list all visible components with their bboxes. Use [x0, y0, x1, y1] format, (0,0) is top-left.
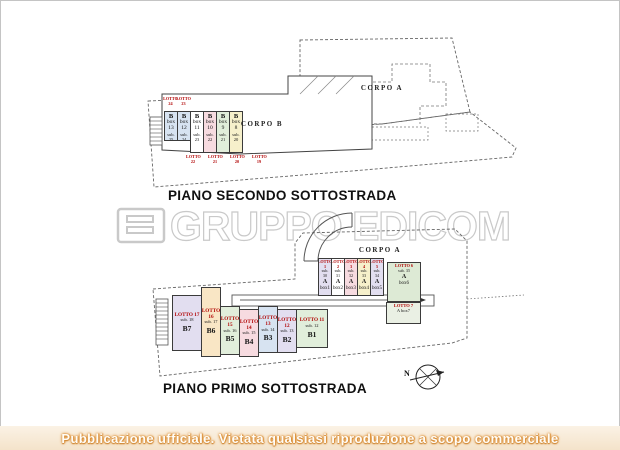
unit-number: box6	[399, 281, 409, 286]
watermark-text: GRUPPO EDICOM	[170, 203, 510, 249]
lot-sub: sub. 13	[280, 329, 293, 334]
unit-cell-box11: B box 11 sub. 23	[190, 111, 204, 153]
publication-banner: Pubblicazione ufficiale. Vietata qualsia…	[0, 426, 620, 450]
lot-sub: sub. 18	[180, 318, 193, 323]
unit-sub: sub. 32	[345, 269, 357, 278]
unit-cell-abox3: LOTTO 3 sub. 32 A box3	[344, 258, 358, 296]
compass-icon	[410, 365, 444, 389]
unit-number: box 9	[217, 120, 229, 132]
unit-cell-box8: B box 8 sub. 20	[229, 111, 243, 153]
unit-cell-box12: B box 12 sub. 24	[177, 111, 191, 141]
corpo-a-label-primo: CORPO A	[350, 246, 410, 254]
lot-name: B6	[207, 327, 216, 335]
stairs-secondo	[150, 117, 162, 145]
unit-sub: sub. 20	[230, 133, 242, 143]
unit-sub: sub. 25	[165, 133, 177, 141]
corpo-a-label-secondo: CORPO A	[352, 84, 412, 92]
compass-n-label: N	[404, 369, 410, 378]
unit-number: box3	[346, 286, 356, 291]
annex-outline	[446, 114, 478, 131]
unit-cell-abox2: LOTTO 2 sub. 31 A box2	[331, 258, 345, 296]
lot-cell-b7: LOTTO 17 sub. 18 B7	[172, 295, 202, 351]
unit-sub: sub. 35	[398, 269, 410, 274]
annex-outline	[364, 127, 428, 140]
lot-cell-b4: LOTTO 14 sub. 15 B4	[239, 309, 259, 357]
unit-number: box4	[359, 286, 369, 291]
unit-sub: sub. 34	[371, 269, 383, 278]
lot-name: B3	[264, 334, 273, 342]
unit-number: A box7	[397, 309, 410, 314]
unit-sub: sub. 30	[319, 269, 331, 278]
cadastral-plan-page: GRUPPO EDICOM	[0, 0, 620, 450]
boundary-stub	[467, 295, 524, 299]
unit-cell-box13: B box 13 sub. 25	[164, 111, 178, 141]
lot-name: B5	[226, 335, 235, 343]
lotto-tag: LOTTO 22	[186, 155, 200, 165]
unit-cell-box9: B box 9 sub. 21	[216, 111, 230, 153]
unit-sub: sub. 23	[191, 133, 203, 143]
lot-name: B7	[183, 325, 192, 333]
lot-sub: sub. 12	[305, 324, 318, 329]
edicom-logo-icon	[118, 209, 164, 242]
unit-number: box 13	[165, 120, 177, 132]
unit-number: box5	[372, 286, 382, 291]
unit-cell-abox6: LOTTO 6 sub. 35 A box6	[387, 262, 421, 302]
lot-cell-b1: LOTTO 11 sub. 12 B1	[296, 309, 328, 348]
unit-cell-abox7: LOTTO 7 A box7	[386, 302, 421, 324]
lot-cell-b5: LOTTO 15 sub. 16 B5	[220, 306, 240, 355]
unit-cell-abox4: LOTTO 4 sub. 33 A box4	[357, 258, 371, 296]
unit-sub: sub. 33	[358, 269, 370, 278]
lotto-tag: LOTTO 20	[230, 155, 244, 165]
corpo-b-label: CORPO B	[232, 120, 292, 128]
lotto-tag: LOTTO 23	[176, 97, 191, 107]
lotto-tag: LOTTO 21	[208, 155, 222, 165]
unit-sub: sub. 22	[204, 133, 216, 143]
lot-cell-b2: LOTTO 12 sub. 13 B2	[277, 309, 297, 353]
lot-sub: sub. 15	[242, 331, 255, 336]
unit-cell-box10: B box 10 sub. 22	[203, 111, 217, 153]
unit-number: box2	[333, 286, 343, 291]
lot-name: B4	[245, 338, 254, 346]
unit-cell-abox5: LOTTO 5 sub. 34 A box5	[370, 258, 384, 296]
lot-name: B2	[283, 336, 292, 344]
unit-number: box1	[320, 286, 330, 291]
unit-sub: sub. 31	[332, 269, 344, 278]
plan-secondo-title: PIANO SECONDO SOTTOSTRADA	[168, 188, 397, 203]
stairs-primo	[156, 299, 168, 345]
unit-sub: sub. 21	[217, 133, 229, 143]
lot-name: B1	[308, 331, 317, 339]
lot-cell-b6: LOTTO 16 sub. 17 B6	[201, 287, 221, 357]
banner-text: Pubblicazione ufficiale. Vietata qualsia…	[61, 431, 558, 446]
lotto-label: LOTTO 13	[259, 316, 277, 327]
lotto-label: LOTTO 15	[221, 317, 239, 328]
lot-cell-b3: LOTTO 13 sub. 14 B3	[258, 306, 278, 353]
lotto-tag: LOTTO 19	[252, 155, 266, 165]
unit-cell-abox1: LOTTO 1 sub. 30 A box1	[318, 258, 332, 296]
lot-sub: sub. 16	[223, 329, 236, 334]
lot-sub: sub. 14	[261, 328, 274, 333]
unit-sub: sub. 24	[178, 133, 190, 141]
plan-primo-title: PIANO PRIMO SOTTOSTRADA	[163, 381, 367, 396]
lot-sub: sub. 17	[204, 320, 217, 325]
unit-number: box 10	[204, 120, 216, 132]
unit-number: box 11	[191, 120, 203, 132]
unit-number: box 12	[178, 120, 190, 132]
